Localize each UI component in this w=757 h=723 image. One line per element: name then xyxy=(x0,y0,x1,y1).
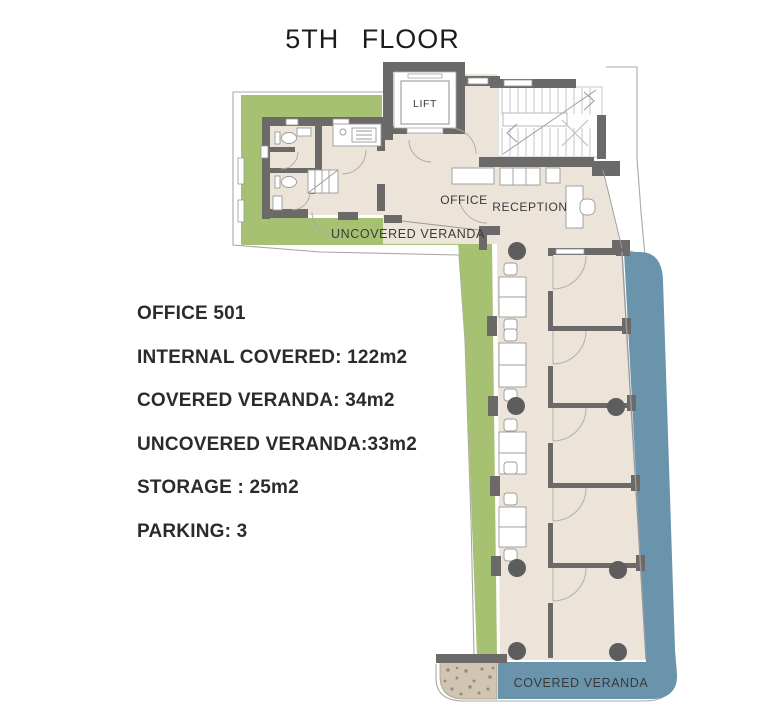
office-label: OFFICE xyxy=(440,193,488,207)
reception-chair xyxy=(580,199,595,215)
wc-sink xyxy=(297,128,311,136)
reception-label: RECEPTION xyxy=(492,200,567,214)
floor-plan-drawing: LIFT OFFICE RECEPTION UNCOVERED VERANDA … xyxy=(0,0,757,723)
covered-veranda-label: COVERED VERANDA xyxy=(514,676,649,690)
kitchen-counter xyxy=(333,124,381,146)
uncovered-veranda-label: UNCOVERED VERANDA xyxy=(331,227,485,241)
stair-landing xyxy=(503,113,567,126)
floor-plan-page: { "title": "5TH FLOOR", "info": { "lines… xyxy=(0,0,757,723)
office-desk xyxy=(452,168,494,184)
lift-label: LIFT xyxy=(413,98,437,110)
gravel-area xyxy=(440,662,497,699)
staircase xyxy=(498,87,602,157)
reception-sofa xyxy=(500,168,540,185)
reception-side-table xyxy=(546,168,560,183)
toilet xyxy=(275,132,297,144)
shower-tray xyxy=(273,196,282,210)
storage-step xyxy=(308,170,338,193)
toilet xyxy=(275,176,297,188)
